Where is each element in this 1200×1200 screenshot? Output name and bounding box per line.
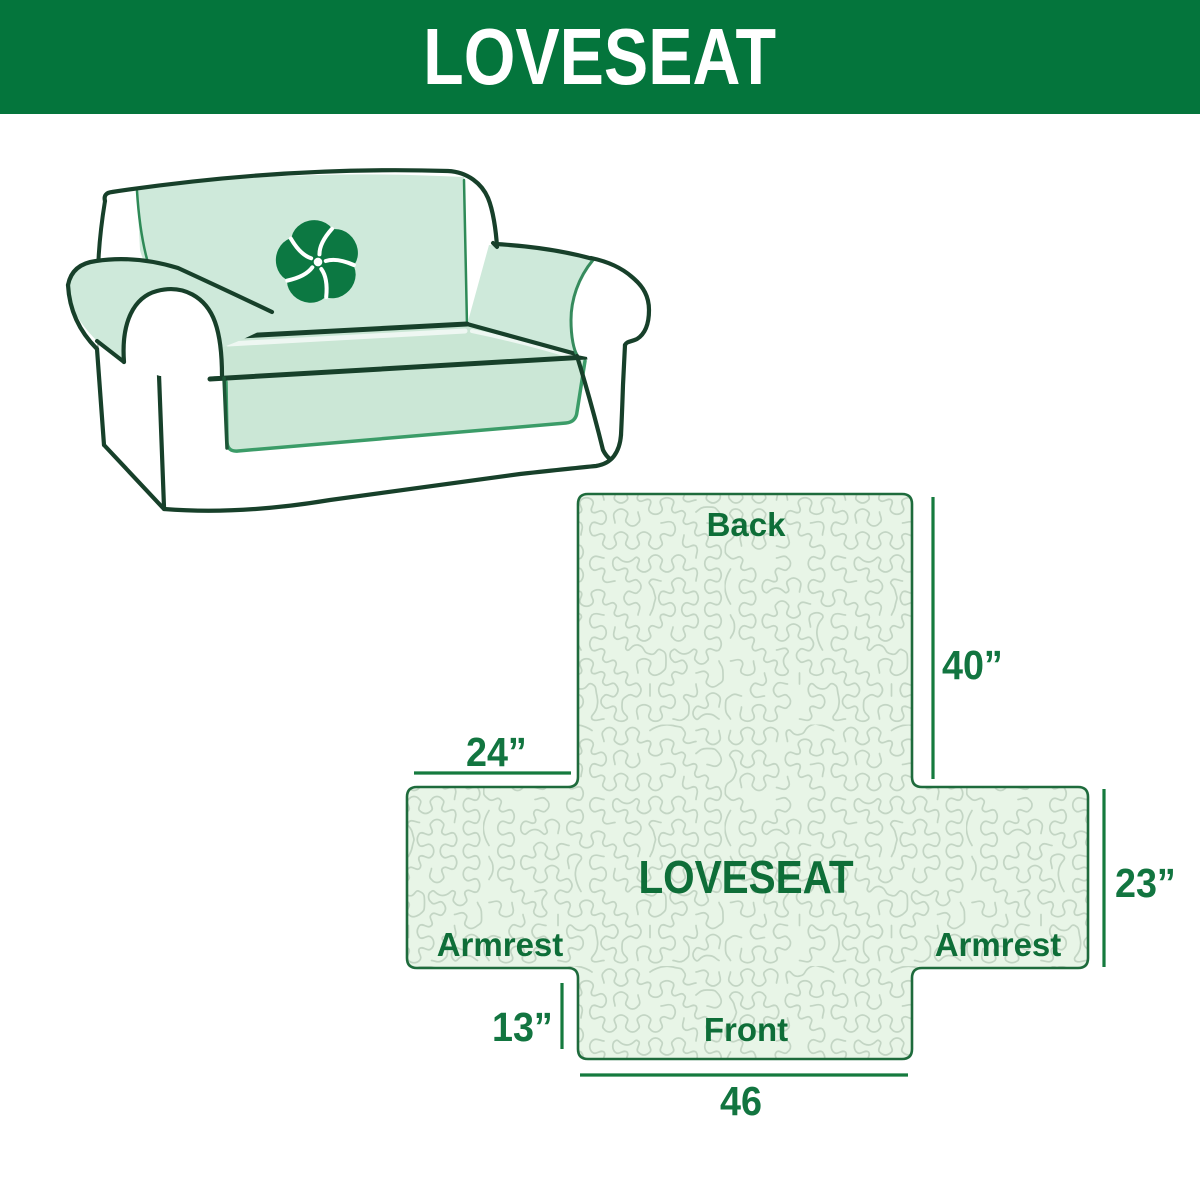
svg-text:13”: 13”	[492, 1005, 553, 1051]
svg-text:40”: 40”	[942, 643, 1003, 689]
svg-text:23”: 23”	[1115, 861, 1176, 907]
svg-text:LOVESEAT: LOVESEAT	[638, 853, 853, 904]
svg-text:Back: Back	[707, 506, 787, 543]
svg-text:24”: 24”	[466, 730, 527, 776]
svg-text:46: 46	[720, 1079, 762, 1125]
svg-text:Armrest: Armrest	[935, 926, 1062, 963]
svg-text:Armrest: Armrest	[437, 926, 564, 963]
svg-text:Front: Front	[704, 1011, 788, 1048]
